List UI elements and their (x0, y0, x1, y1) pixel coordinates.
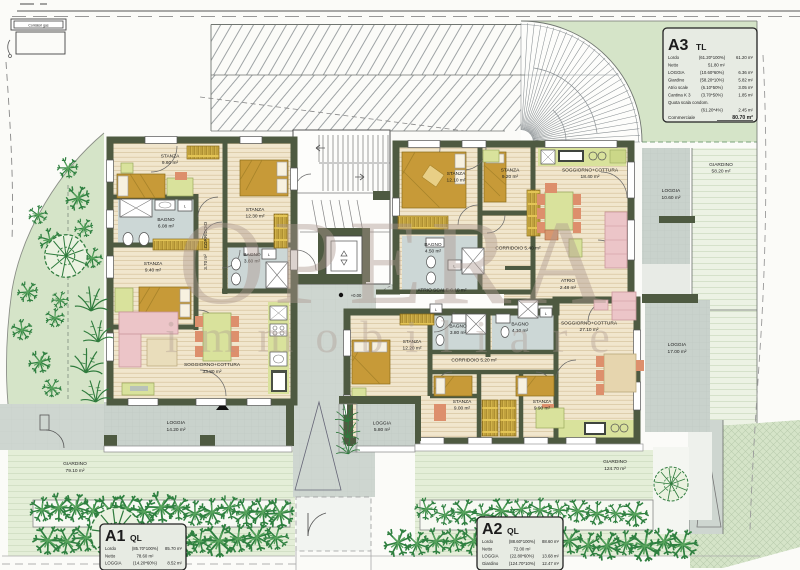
svg-text:LOGGIA: LOGGIA (668, 342, 687, 348)
svg-text:Lordo: Lordo (105, 546, 117, 551)
svg-text:80.70 m²: 80.70 m² (732, 115, 753, 121)
svg-text:13.68 m²: 13.68 m² (542, 554, 560, 559)
svg-text:Netto: Netto (668, 63, 679, 68)
svg-text:LOGGIA: LOGGIA (662, 188, 681, 194)
svg-text:124.70 m²: 124.70 m² (604, 466, 626, 472)
svg-text:(88.60*100%): (88.60*100%) (509, 539, 536, 544)
svg-text:immobiliare: immobiliare (165, 311, 632, 362)
svg-text:Commerciale: Commerciale (668, 115, 696, 120)
svg-text:(10.60*60%): (10.60*60%) (700, 70, 724, 75)
svg-text:A3: A3 (668, 37, 689, 54)
svg-text:Netto: Netto (105, 553, 116, 558)
svg-text:78.60 m²: 78.60 m² (137, 553, 155, 558)
svg-text:9.00 m²: 9.00 m² (454, 406, 471, 412)
svg-text:(61.20*100%): (61.20*100%) (699, 55, 726, 60)
svg-text:(58.20*10%): (58.20*10%) (700, 78, 724, 83)
svg-text:58.20 m²: 58.20 m² (712, 169, 731, 175)
svg-text:9.90 m²: 9.90 m² (534, 406, 551, 412)
svg-text:88.60 m²: 88.60 m² (542, 539, 560, 544)
svg-text:5.82 m²: 5.82 m² (738, 78, 753, 83)
svg-text:51.80 m²: 51.80 m² (708, 63, 726, 68)
svg-text:OPERA: OPERA (178, 196, 615, 330)
svg-text:(6.10*50%): (6.10*50%) (701, 85, 723, 90)
svg-text:12.10 m²: 12.10 m² (447, 178, 466, 184)
svg-text:Contatori gas: Contatori gas (28, 23, 48, 27)
svg-text:6.08 m²: 6.08 m² (158, 224, 175, 230)
svg-text:SOGGIORNO+COTTURA: SOGGIORNO+COTTURA (562, 168, 619, 174)
svg-text:A1: A1 (105, 528, 126, 545)
svg-text:A2: A2 (482, 521, 503, 538)
svg-text:9.40 m²: 9.40 m² (145, 268, 162, 274)
svg-text:9.20 m²: 9.20 m² (502, 174, 519, 180)
svg-text:72.00 m²: 72.00 m² (514, 546, 532, 551)
svg-text:Quota scala condom.: Quota scala condom. (668, 100, 709, 105)
svg-text:61.20 m²: 61.20 m² (736, 55, 754, 60)
svg-text:(22.80*60%): (22.80*60%) (510, 554, 534, 559)
svg-text:TL: TL (696, 42, 706, 52)
svg-text:(3.70*50%): (3.70*50%) (701, 93, 723, 98)
svg-text:GIARDINO: GIARDINO (709, 162, 733, 168)
svg-text:79.10 m²: 79.10 m² (66, 468, 85, 474)
svg-text:LOGGIA: LOGGIA (668, 70, 685, 75)
svg-text:Atrio scale: Atrio scale (668, 85, 689, 90)
svg-text:9.60 m²: 9.60 m² (162, 160, 179, 166)
svg-text:STANZA: STANZA (447, 171, 466, 177)
svg-text:LOGGIA: LOGGIA (373, 421, 392, 427)
svg-text:Giardino: Giardino (668, 78, 685, 83)
svg-text:LOGGIA: LOGGIA (105, 561, 122, 566)
svg-text:(124.70*10%): (124.70*10%) (509, 561, 536, 566)
svg-text:1.85 m²: 1.85 m² (738, 93, 753, 98)
svg-text:SOGGIORNO+COTTURA: SOGGIORNO+COTTURA (184, 362, 241, 368)
svg-text:QL: QL (507, 526, 519, 536)
svg-text:STANZA: STANZA (501, 168, 520, 174)
svg-text:85.70 m²: 85.70 m² (165, 546, 183, 551)
svg-text:(14.20*60%): (14.20*60%) (133, 561, 157, 566)
svg-text:14.20 m²: 14.20 m² (167, 427, 186, 433)
svg-text:Lordo: Lordo (482, 539, 494, 544)
svg-text:Giardino: Giardino (482, 561, 499, 566)
svg-text:STANZA: STANZA (533, 399, 552, 405)
svg-text:Lordo: Lordo (668, 55, 680, 60)
svg-text:LOGGIA: LOGGIA (482, 554, 499, 559)
svg-text:33.80 m²: 33.80 m² (203, 369, 222, 375)
svg-text:STANZA: STANZA (453, 399, 472, 405)
svg-text:(61.20*4%): (61.20*4%) (701, 108, 723, 113)
svg-text:10.60 m²: 10.60 m² (662, 195, 681, 201)
svg-text:6.36 m²: 6.36 m² (738, 70, 753, 75)
svg-text:BAGNO: BAGNO (157, 217, 175, 223)
svg-text:3.05 m²: 3.05 m² (738, 85, 753, 90)
svg-text:Netto: Netto (482, 546, 493, 551)
svg-text:GIARDINO: GIARDINO (63, 461, 87, 467)
svg-text:12.47 m²: 12.47 m² (542, 561, 560, 566)
svg-text:STANZA: STANZA (144, 261, 163, 267)
svg-text:(85.70*100%): (85.70*100%) (132, 546, 159, 551)
svg-text:18.40 m²: 18.40 m² (581, 174, 600, 180)
svg-text:5.80 m²: 5.80 m² (374, 427, 391, 433)
svg-text:GIARDINO: GIARDINO (603, 459, 627, 465)
svg-text:2.45 m²: 2.45 m² (738, 108, 753, 113)
svg-text:8.52 m²: 8.52 m² (167, 561, 182, 566)
svg-text:17.00 m²: 17.00 m² (668, 349, 687, 355)
svg-text:LOGGIA: LOGGIA (167, 420, 186, 426)
svg-text:Cantina K 3: Cantina K 3 (668, 93, 691, 98)
svg-text:STANZA: STANZA (161, 154, 180, 160)
svg-text:QL: QL (130, 533, 142, 543)
